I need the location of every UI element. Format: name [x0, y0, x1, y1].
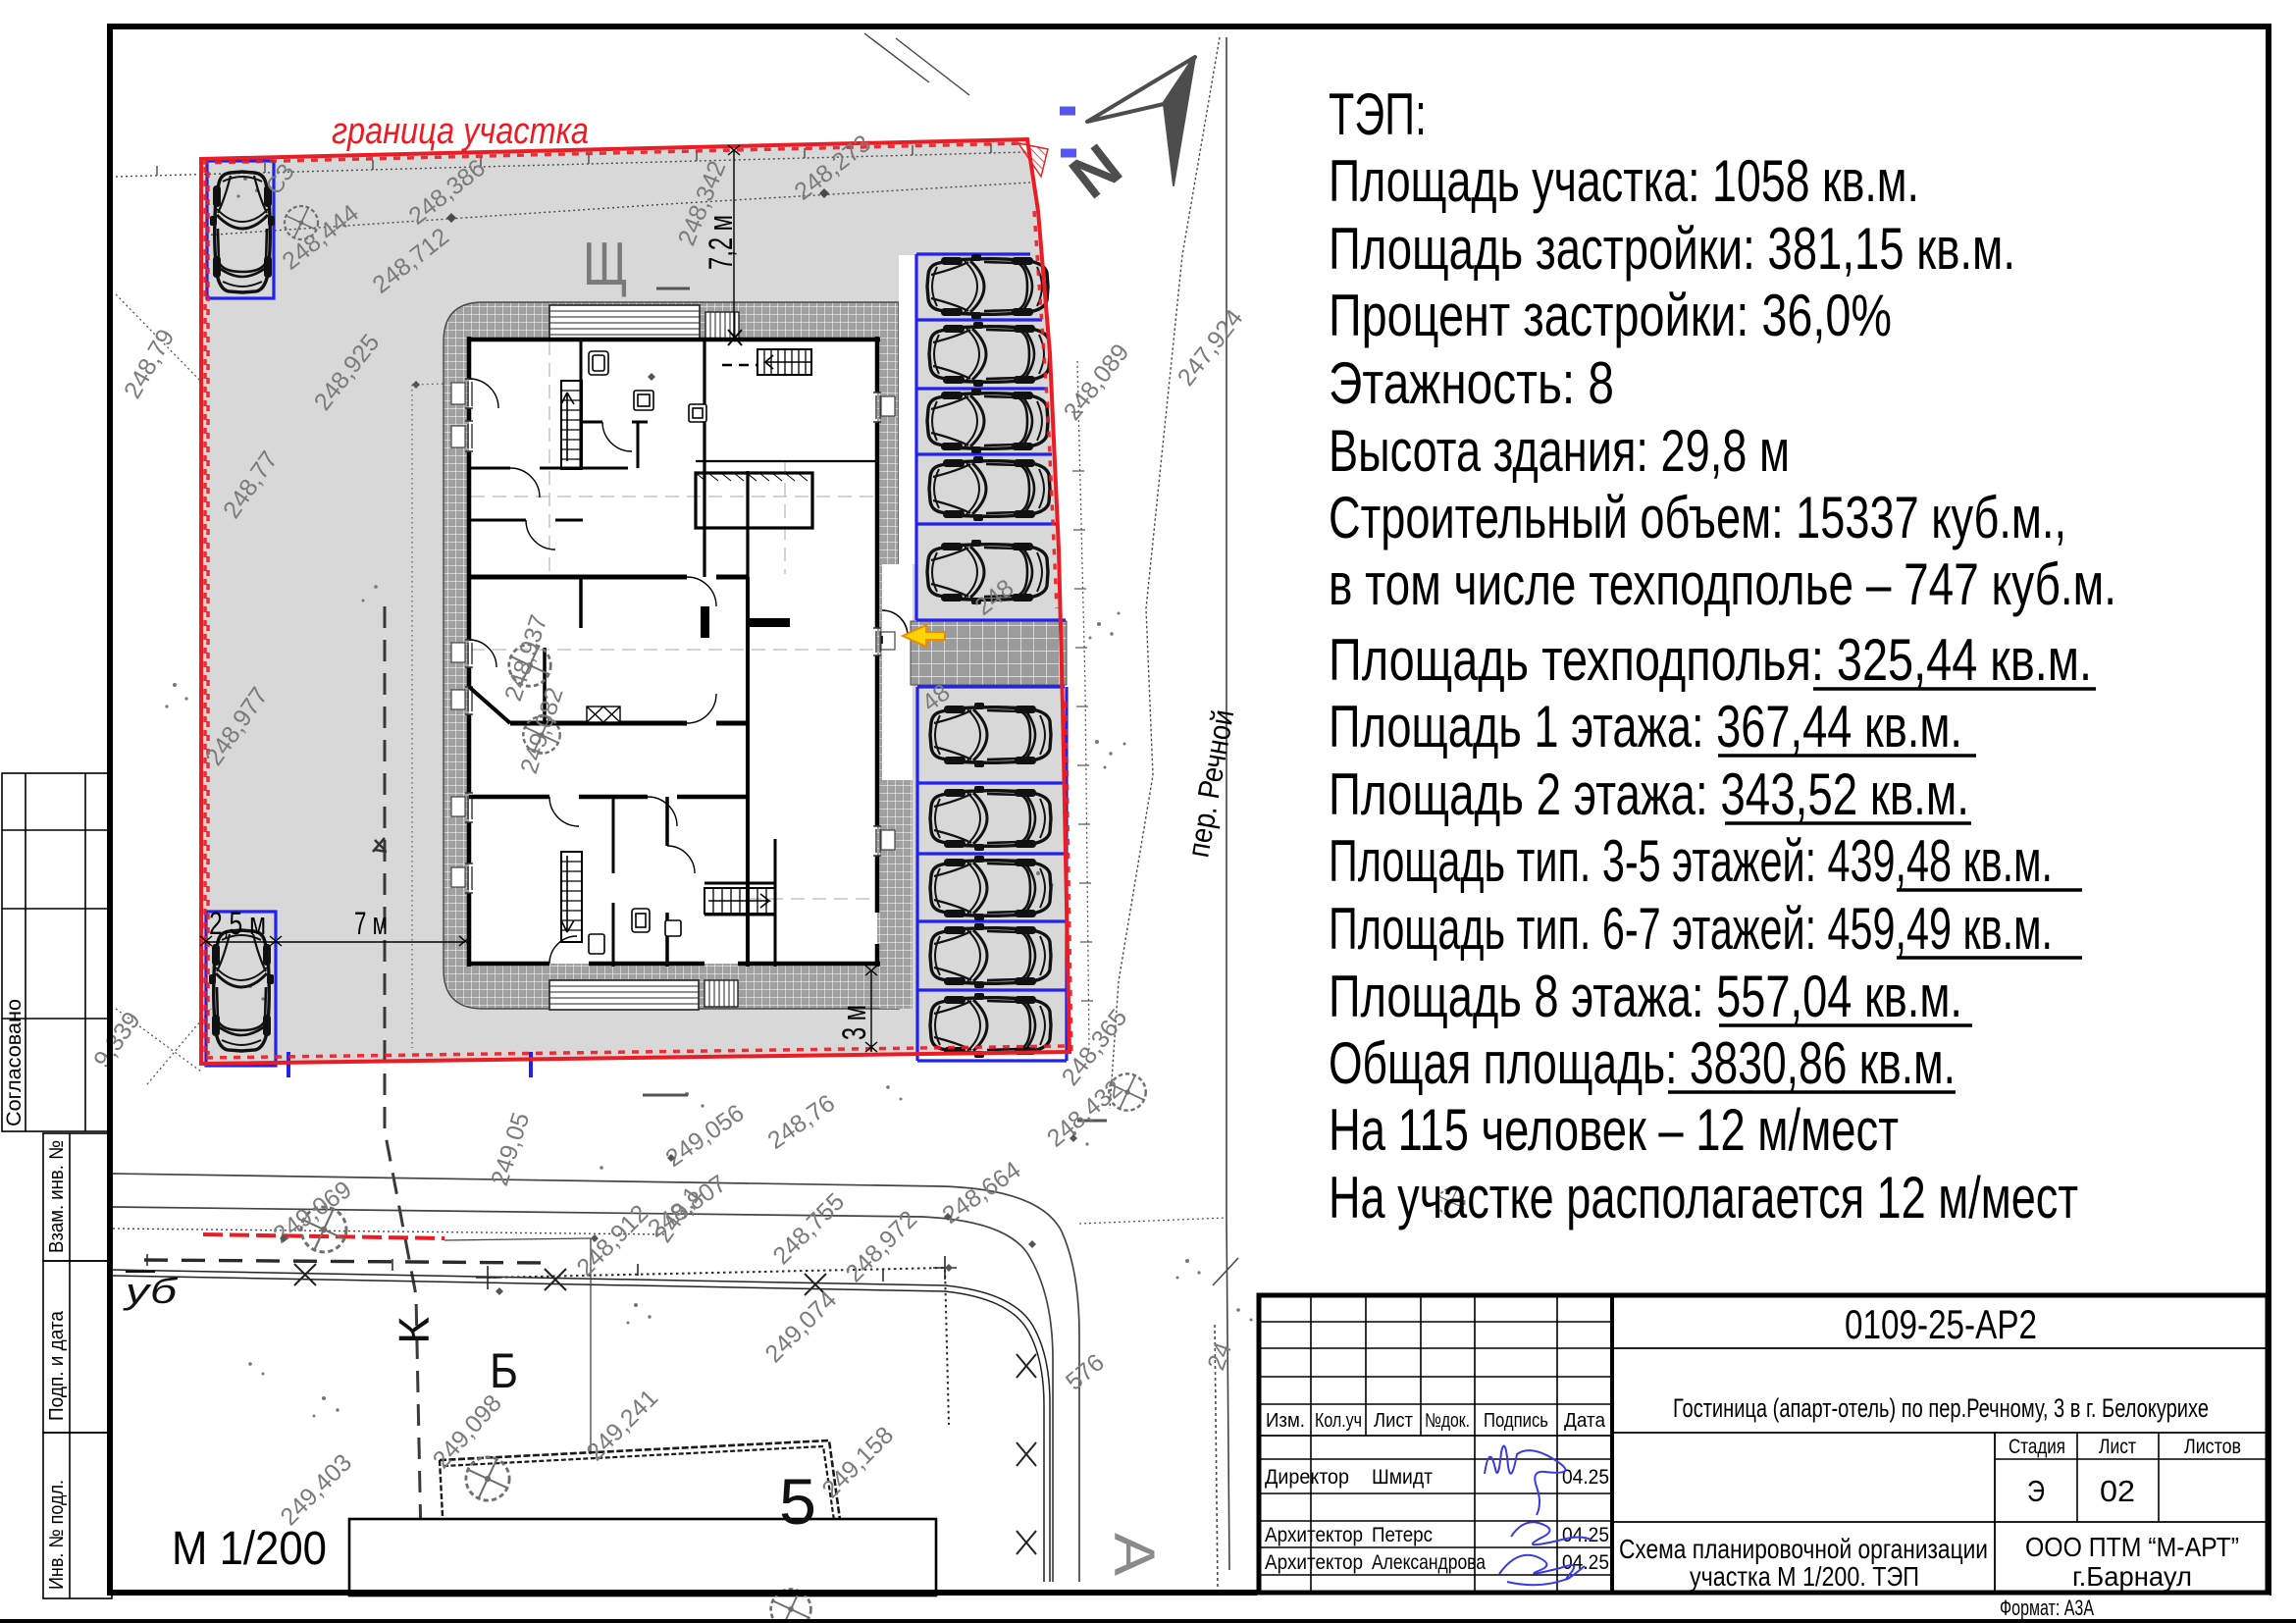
svg-text:ТЭП:: ТЭП: [1329, 81, 1427, 147]
svg-text:04.25: 04.25 [1562, 1551, 1609, 1574]
svg-text:Гостиница (апарт-отель) по пер: Гостиница (апарт-отель) по пер.Речному, … [1673, 1393, 2209, 1423]
svg-text:Площадь участка: 1058 кв.м.: Площадь участка: 1058 кв.м. [1329, 148, 1919, 214]
svg-text:Согласовано: Согласовано [3, 999, 26, 1126]
svg-text:граница участка: граница участка [332, 111, 589, 152]
svg-text:Лист: Лист [1374, 1410, 1413, 1432]
svg-text:7 м: 7 м [354, 906, 388, 941]
svg-text:Лист: Лист [2099, 1436, 2136, 1458]
svg-text:Шмидт: Шмидт [1372, 1466, 1433, 1489]
svg-text:Площадь 1 этажа: 367,44 кв.м.: Площадь 1 этажа: 367,44 кв.м. [1329, 694, 1962, 759]
svg-text:Схема планировочной организаци: Схема планировочной организации [1619, 1534, 1988, 1564]
svg-text:0109-25-АР2: 0109-25-АР2 [1845, 1301, 2037, 1347]
svg-text:Архитектор: Архитектор [1265, 1551, 1363, 1574]
svg-text:Кол.уч: Кол.уч [1315, 1410, 1362, 1432]
svg-text:в том числе техподполье – 747: в том числе техподполье – 747 куб.м. [1329, 551, 2116, 617]
svg-text:уб: уб [122, 1271, 179, 1311]
svg-text:Щ: Щ [583, 231, 628, 298]
svg-text:Подп. и дата: Подп. и дата [46, 1310, 68, 1421]
svg-text:ООО ПТМ “М-АРТ”: ООО ПТМ “М-АРТ” [2025, 1532, 2239, 1562]
svg-text:Директор: Директор [1265, 1466, 1349, 1489]
svg-text:Изм.: Изм. [1266, 1410, 1305, 1432]
svg-text:А: А [1102, 1533, 1166, 1576]
svg-text:Дата: Дата [1564, 1410, 1606, 1432]
svg-text:Этажность: 8: Этажность: 8 [1329, 350, 1614, 416]
svg-text:К: К [391, 1317, 439, 1344]
svg-text:Площадь техподполья: 325,44 кв: Площадь техподполья: 325,44 кв.м. [1329, 627, 2092, 693]
svg-text:г.Барнаул: г.Барнаул [2072, 1561, 2192, 1592]
svg-text:Петерс: Петерс [1372, 1524, 1433, 1546]
svg-text:Б: Б [490, 1343, 518, 1398]
svg-text:На 115 человек – 12 м/мест: На 115 человек – 12 м/мест [1329, 1097, 1899, 1163]
svg-text:2,5 м: 2,5 м [209, 906, 266, 941]
svg-text:Взам. инв. №: Взам. инв. № [46, 1140, 68, 1253]
svg-text:На участке располагается 12 м/: На участке располагается 12 м/мест [1329, 1165, 2078, 1230]
svg-text:Общая площадь: 3830,86 кв.м.: Общая площадь: 3830,86 кв.м. [1329, 1030, 1956, 1096]
svg-text:Площадь 2 этажа: 343,52 кв.м.: Площадь 2 этажа: 343,52 кв.м. [1329, 761, 1969, 827]
svg-text:Процент застройки: 36,0%: Процент застройки: 36,0% [1329, 283, 1892, 348]
svg-text:Э: Э [2027, 1474, 2045, 1508]
svg-text:участка М 1/200. ТЭП: участка М 1/200. ТЭП [1690, 1561, 1919, 1592]
svg-text:Архитектор: Архитектор [1265, 1524, 1363, 1546]
svg-text:5: 5 [779, 1465, 816, 1538]
svg-text:Высота здания: 29,8 м: Высота здания: 29,8 м [1329, 418, 1790, 484]
svg-text:Подпись: Подпись [1484, 1410, 1548, 1432]
svg-text:№док.: №док. [1425, 1410, 1470, 1432]
svg-text:Площадь тип. 6-7 этажей: 459,4: Площадь тип. 6-7 этажей: 459,49 кв.м. [1329, 896, 2053, 962]
svg-text:02: 02 [2100, 1474, 2135, 1508]
svg-text:Площадь застройки: 381,15 кв.м: Площадь застройки: 381,15 кв.м. [1329, 216, 2015, 282]
svg-text:Листов: Листов [2184, 1436, 2241, 1458]
svg-text:М 1/200: М 1/200 [172, 1523, 327, 1575]
svg-text:Строительный объем: 15337 куб.: Строительный объем: 15337 куб.м., [1329, 485, 2066, 550]
svg-text:3 м: 3 м [836, 1005, 873, 1040]
svg-text:Инв. № подл.: Инв. № подл. [46, 1480, 68, 1590]
svg-text:Стадия: Стадия [2009, 1436, 2065, 1458]
svg-text:Формат: А3А: Формат: А3А [2000, 1596, 2094, 1620]
svg-text:04.25: 04.25 [1562, 1524, 1609, 1546]
svg-text:04.25: 04.25 [1562, 1466, 1609, 1489]
svg-text:Площадь тип. 3-5 этажей: 439,4: Площадь тип. 3-5 этажей: 439,48 кв.м. [1329, 828, 2053, 894]
svg-text:Площадь 8 этажа: 557,04 кв.м.: Площадь 8 этажа: 557,04 кв.м. [1329, 964, 1962, 1029]
svg-text:Александрова: Александрова [1372, 1551, 1486, 1574]
